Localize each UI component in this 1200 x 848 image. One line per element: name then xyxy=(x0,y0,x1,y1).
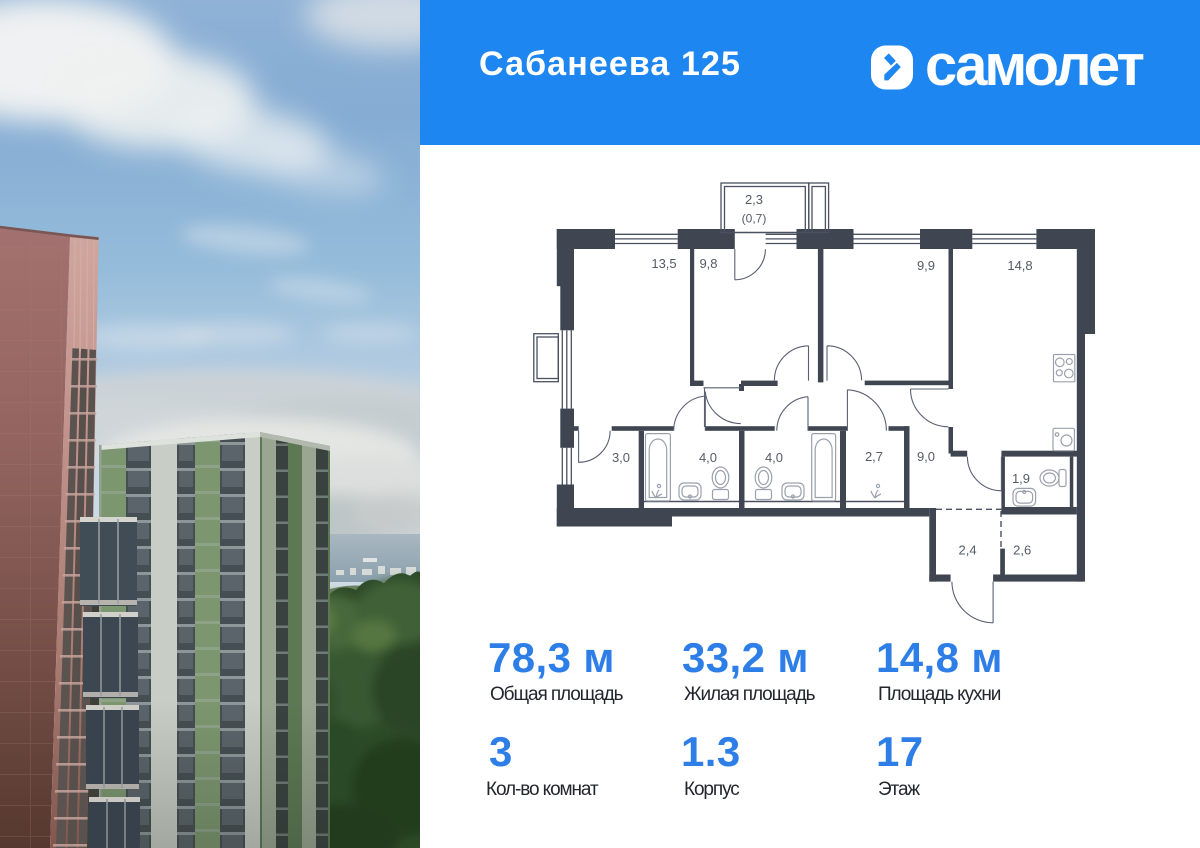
svg-text:14,8: 14,8 xyxy=(1007,258,1032,273)
svg-text:4,0: 4,0 xyxy=(765,450,783,465)
svg-text:4,0: 4,0 xyxy=(699,450,717,465)
svg-text:9,0: 9,0 xyxy=(917,449,935,464)
svg-text:1,9: 1,9 xyxy=(1012,471,1030,486)
svg-text:2,7: 2,7 xyxy=(865,449,883,464)
svg-text:2,6: 2,6 xyxy=(1013,543,1031,558)
svg-text:13,5: 13,5 xyxy=(651,256,676,271)
svg-text:9,9: 9,9 xyxy=(917,258,935,273)
svg-text:9,8: 9,8 xyxy=(699,256,717,271)
svg-text:2,4: 2,4 xyxy=(959,543,977,558)
svg-text:2,3: 2,3 xyxy=(745,192,763,207)
svg-text:3,0: 3,0 xyxy=(612,450,630,465)
svg-text:(0,7): (0,7) xyxy=(742,212,767,226)
svg-text:самолет: самолет xyxy=(925,36,1144,96)
